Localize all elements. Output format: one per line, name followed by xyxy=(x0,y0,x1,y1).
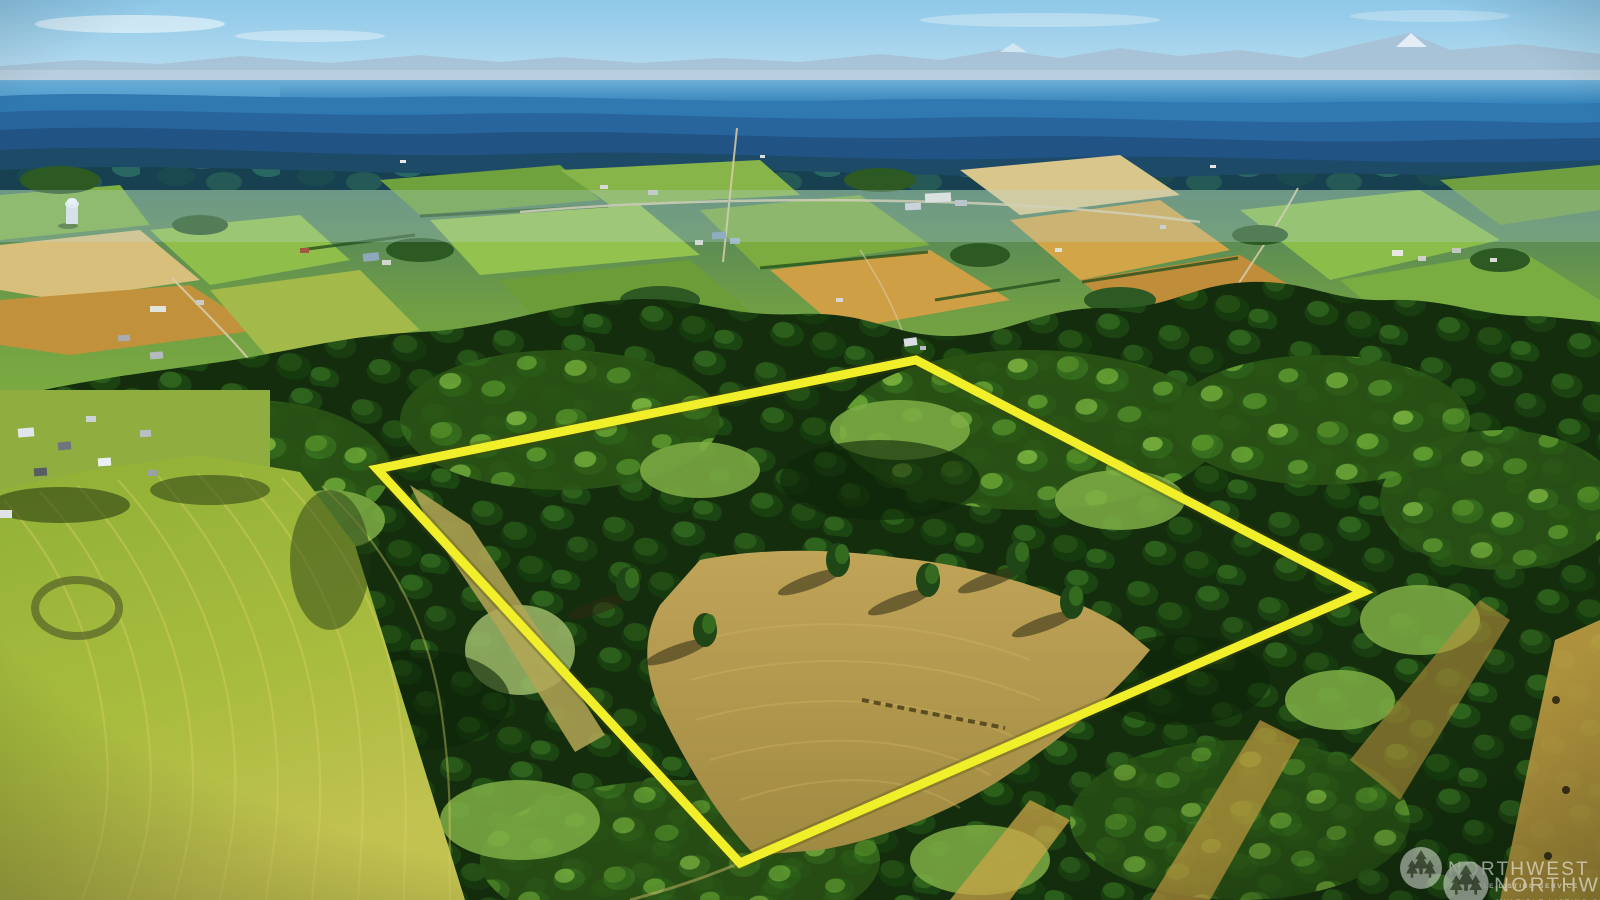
aerial-photo-canvas: NORTHWEST MULTIPLE LISTING SERVICE NORTH… xyxy=(0,0,1600,900)
vignette-overlay xyxy=(0,0,1600,900)
aerial-listing-photo: NORTHWEST MULTIPLE LISTING SERVICE NORTH… xyxy=(0,0,1600,900)
mls-brand-text: NORTHWEST xyxy=(1494,874,1600,897)
